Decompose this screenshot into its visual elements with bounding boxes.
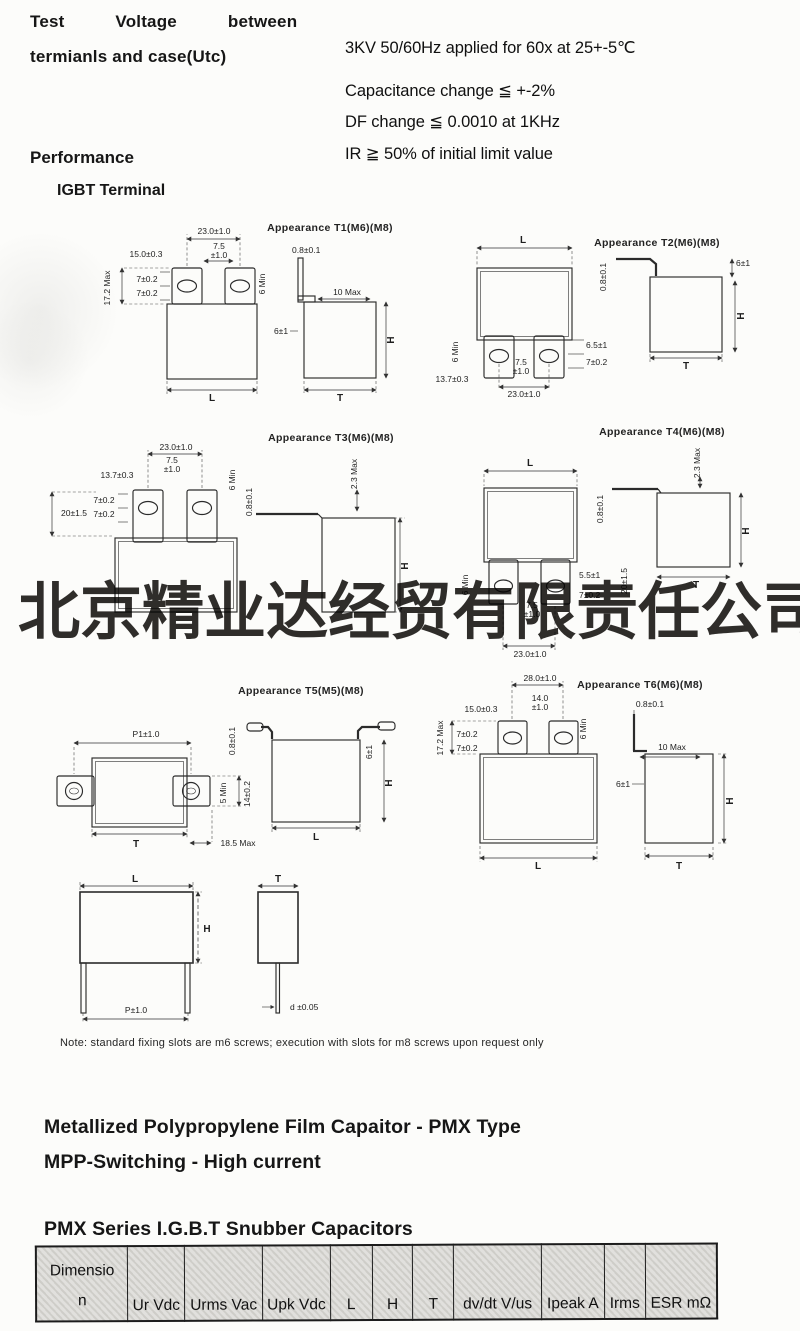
col-header-upk-vdc: Upk Vdc: [262, 1245, 330, 1320]
t6-thickness-label: 0.8±0.1: [636, 699, 665, 709]
col-header-esr: ESR mΩ: [645, 1244, 717, 1319]
t2-dim-t-label: T: [683, 361, 689, 372]
t7-pitch-label: P±1.0: [125, 1005, 147, 1015]
t6-footmax-label: 10 Max: [658, 742, 687, 752]
t4-leadmax-label: 2.3 Max: [692, 447, 702, 478]
t6-dim-l-label: L: [535, 861, 541, 872]
t6-slot-label-b: 7±0.2: [456, 743, 477, 753]
t3-dim-h-label: H: [400, 562, 411, 569]
t5-tab-left: [57, 776, 94, 806]
t5-dim-t-label: T: [133, 839, 139, 850]
t1-terminal-left: [172, 268, 202, 304]
table-header-row: Dimensio n Ur Vdc Urms Vac Upk Vdc L H T…: [36, 1244, 717, 1322]
col-header-ur-vdc: Ur Vdc: [128, 1246, 185, 1321]
t2-tabmin-label: 6 Min: [450, 341, 460, 362]
t7-dim-h-label: H: [203, 924, 210, 935]
t3-slot-label-a: 7±0.2: [93, 495, 114, 505]
t3-tabmin-label: 6 Min: [227, 469, 237, 490]
t3-title: Appearance T3(M6)(M8): [268, 432, 394, 444]
diagram-outline: L H P±1.0 T d ±0.05: [80, 874, 319, 1022]
t1-dim-t-label: T: [337, 393, 343, 404]
t2-body-side: [650, 277, 722, 352]
col-header-l: L: [330, 1245, 372, 1320]
section-title-pmx-type: Metallized Polypropylene Film Capaitor -…: [44, 1116, 521, 1139]
t1-body-front: [167, 304, 257, 379]
t2-offset-label: 6±1: [736, 258, 750, 268]
t1-footmax-label: 10 Max: [333, 287, 362, 297]
t6-edge-label: 15.0±0.3: [464, 704, 497, 714]
t5-pitch-label: P1±1.0: [133, 729, 160, 739]
t1-tabw-label-b: ±1.0: [211, 250, 228, 260]
t2-dim-h-label: H: [736, 312, 747, 319]
t3-tabw-label-b: ±1.0: [164, 464, 181, 474]
diagram-t6: Appearance T6(M6)(M8) 28.0±1.0 14.0 ±1.0…: [435, 673, 736, 872]
t6-tabmin-label: 6 Min: [578, 718, 588, 739]
t6-terminal-left: [498, 721, 527, 754]
t6-heightmax-label: 17.2 Max: [435, 720, 445, 756]
col-header-urms-vac: Urms Vac: [185, 1245, 263, 1320]
t3-terminal-left: [133, 490, 163, 542]
t6-pitch-label: 28.0±1.0: [523, 673, 556, 683]
t7-lead-side: [276, 963, 280, 1013]
col-header-h: H: [372, 1245, 413, 1320]
t2-thickness-label: 0.8±0.1: [598, 263, 608, 292]
t3-edge-label: 13.7±0.3: [100, 470, 133, 480]
t6-title: Appearance T6(M6)(M8): [577, 679, 703, 691]
section-title-mpp: MPP-Switching - High current: [44, 1151, 321, 1174]
t5-title: Appearance T5(M5)(M8): [238, 685, 364, 697]
t4-pitch-label: 23.0±1.0: [513, 649, 546, 659]
t1-edge-label: 15.0±0.3: [129, 249, 162, 259]
t1-thickness-label: 0.8±0.1: [292, 245, 321, 255]
t1-body-side: [304, 302, 376, 378]
t1-heightmax-label: 17.2 Max: [102, 270, 112, 306]
t1-terminal-right: [225, 268, 255, 304]
scanned-datasheet-page: Test Voltage between termianls and case(…: [0, 0, 800, 1331]
t2-edge-label: 13.7±0.3: [435, 374, 468, 384]
diagram-t5: Appearance T5(M5)(M8) P1±1.0 5 Min 14±0.…: [57, 685, 395, 850]
t2-body-front: [477, 268, 572, 340]
col-header-dvdt: dv/dt V/us: [453, 1244, 541, 1319]
t6-offset-label: 6±1: [616, 779, 630, 789]
t2-offset-a-label: 6.5±1: [586, 340, 607, 350]
t5-tabmin-label: 5 Min: [218, 782, 228, 803]
t1-slot-label-a: 7±0.2: [136, 274, 157, 284]
t5-lead-right: [378, 722, 395, 730]
t4-body-front: [484, 488, 577, 562]
t5-lenmax-label: 18.5 Max: [221, 838, 257, 848]
col-header-irms: Irms: [604, 1244, 645, 1319]
col-header-t: T: [413, 1245, 454, 1320]
t5-offset-label: 6±1: [364, 745, 374, 759]
t4-dim-h-label: H: [741, 527, 752, 534]
t6-dim-h-label: H: [725, 797, 736, 804]
t5-thickness-label: 0.8±0.1: [227, 727, 237, 756]
t4-title: Appearance T4(M6)(M8): [599, 426, 725, 438]
t5-dim-h-label: H: [384, 779, 395, 786]
t1-pitch-label: 23.0±1.0: [197, 226, 230, 236]
t1-tabmin-label: 6 Min: [257, 273, 267, 294]
table-title: PMX Series I.G.B.T Snubber Capacitors: [44, 1218, 413, 1241]
t1-offset-label: 6±1: [274, 326, 288, 336]
t2-tabw-label-b: ±1.0: [513, 366, 530, 376]
t5-tabw-label: 14±0.2: [242, 781, 252, 807]
t4-dim-l-label: L: [527, 458, 533, 469]
t7-lead-right: [185, 963, 190, 1013]
t6-tabw-label-b: ±1.0: [532, 702, 549, 712]
t7-body-side: [258, 892, 298, 963]
t7-dim-l-label: L: [132, 874, 138, 885]
t2-pitch-label: 23.0±1.0: [507, 389, 540, 399]
t3-slot-label-b: 7±0.2: [93, 509, 114, 519]
t2-dim-l-label: L: [520, 235, 526, 246]
t3-thickness-label: 0.8±0.1: [244, 488, 254, 517]
t1-dim-h-label: H: [386, 336, 397, 343]
t6-dim-t-label: T: [676, 861, 682, 872]
t4-thickness-label: 0.8±0.1: [595, 495, 605, 524]
t7-body-front: [80, 892, 193, 963]
t5-body-side: [272, 740, 360, 822]
t2-slot-label: 7±0.2: [586, 357, 607, 367]
t3-leadmax-label: 2.3 Max: [349, 458, 359, 489]
t5-lead-left: [247, 723, 263, 731]
t7-dim-t-label: T: [275, 874, 281, 885]
t6-body-front: [480, 754, 597, 843]
t7-lead-left: [81, 963, 86, 1013]
t6-terminal-right: [549, 721, 578, 754]
t4-body-side: [657, 493, 730, 567]
spec-table: Dimensio n Ur Vdc Urms Vac Upk Vdc L H T…: [35, 1243, 718, 1323]
diagram-t1: Appearance T1(M6)(M8) 23.0±1.0 7.5 ±1.0 …: [102, 222, 397, 404]
t5-tab-right: [173, 776, 210, 806]
t5-dim-l-label: L: [313, 832, 319, 843]
col-header-ipeak: Ipeak A: [541, 1244, 604, 1319]
diagram-t2: Appearance T2(M6)(M8) L 6 Min 13.7±0.3 7…: [435, 235, 750, 399]
t6-body-side: [645, 754, 713, 843]
t1-slot-label-b: 7±0.2: [136, 288, 157, 298]
t2-title: Appearance T2(M6)(M8): [594, 237, 720, 249]
t1-title: Appearance T1(M6)(M8): [267, 222, 393, 234]
t6-slot-label-a: 7±0.2: [456, 729, 477, 739]
t3-pitch-label: 23.0±1.0: [159, 442, 192, 452]
t7-leadd-label: d ±0.05: [290, 1002, 319, 1012]
col-header-dimension: Dimensio n: [36, 1246, 128, 1321]
t3-terminal-right: [187, 490, 217, 542]
t1-dim-l-label: L: [209, 393, 215, 404]
watermark-chinese: 北京精业达经贸有限责任公司: [18, 580, 784, 645]
t3-tablen-label: 20±1.5: [61, 508, 87, 518]
note-text: Note: standard fixing slots are m6 screw…: [60, 1037, 544, 1049]
